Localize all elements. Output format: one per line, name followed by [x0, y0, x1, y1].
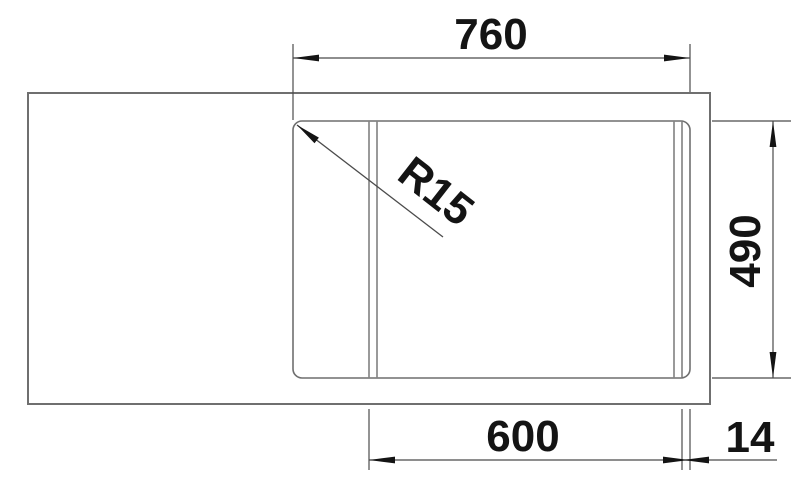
- sink-technical-drawing-page: R15 760 490 600: [0, 0, 800, 491]
- arrow-right-icon: [664, 55, 690, 62]
- dimension-value-right-height: 490: [721, 214, 770, 287]
- dimension-bottom-rim-offset: 14: [683, 409, 777, 470]
- arrow-up-icon: [770, 121, 777, 147]
- dimension-bottom-bowl-width: 600: [369, 409, 689, 470]
- dimension-right-height: 490: [712, 121, 791, 378]
- arrow-left-icon: [369, 457, 395, 464]
- arrow-left-icon: [683, 457, 709, 464]
- dimension-value-bowl-width: 600: [486, 412, 559, 461]
- arrow-left-icon: [293, 55, 319, 62]
- arrow-down-icon: [770, 352, 777, 378]
- dimension-value-rim-offset: 14: [726, 413, 775, 462]
- dimension-value-top-width: 760: [454, 10, 527, 59]
- sink-dimension-drawing: R15 760 490 600: [0, 0, 800, 491]
- sink-plan-view: [28, 93, 710, 404]
